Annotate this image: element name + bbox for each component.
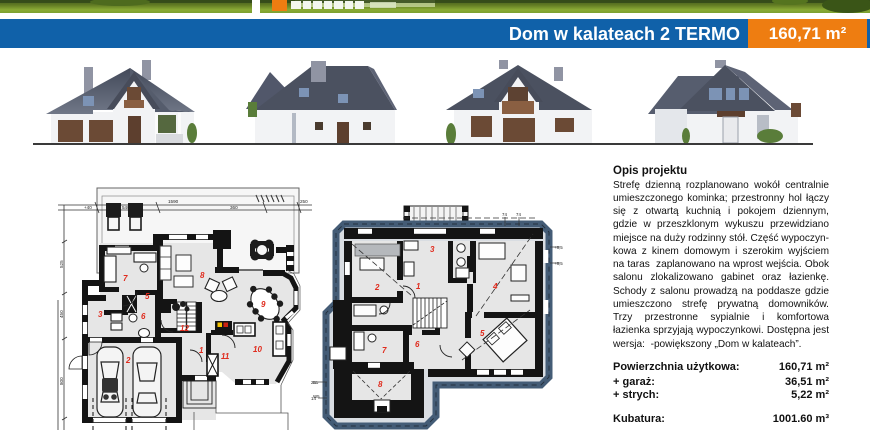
svg-text:10: 10 <box>253 345 262 354</box>
svg-text:6: 6 <box>415 340 420 349</box>
svg-text:+40: +40 <box>84 205 92 210</box>
svg-text:4: 4 <box>492 282 498 291</box>
svg-text:1: 1 <box>416 282 421 291</box>
svg-text:800: 800 <box>59 377 64 385</box>
svg-text:9: 9 <box>261 300 266 309</box>
svg-text:1590: 1590 <box>168 199 179 204</box>
svg-text:25: 25 <box>311 380 316 385</box>
svg-text:2: 2 <box>374 283 380 292</box>
svg-text:8: 8 <box>378 380 383 389</box>
svg-text:3: 3 <box>430 245 435 254</box>
svg-text:360: 360 <box>230 205 238 210</box>
svg-text:8: 8 <box>200 271 205 280</box>
svg-text:+8,5: +8,5 <box>554 245 563 250</box>
svg-text:14: 14 <box>311 396 316 401</box>
svg-text:5: 5 <box>480 329 485 338</box>
svg-text:12: 12 <box>180 324 189 333</box>
svg-text:+8,5: +8,5 <box>554 261 563 266</box>
svg-text:250: 250 <box>300 199 308 204</box>
svg-text:6: 6 <box>141 312 146 321</box>
svg-text:7: 7 <box>382 346 387 355</box>
svg-text:74: 74 <box>516 212 521 217</box>
svg-text:450: 450 <box>59 310 64 318</box>
svg-text:525: 525 <box>59 260 64 268</box>
svg-text:74: 74 <box>502 212 507 217</box>
svg-text:11: 11 <box>221 352 230 361</box>
svg-text:3: 3 <box>98 310 103 319</box>
svg-text:7: 7 <box>123 274 128 283</box>
svg-text:1: 1 <box>199 346 204 355</box>
svg-text:5: 5 <box>145 292 150 301</box>
svg-text:2: 2 <box>125 356 131 365</box>
